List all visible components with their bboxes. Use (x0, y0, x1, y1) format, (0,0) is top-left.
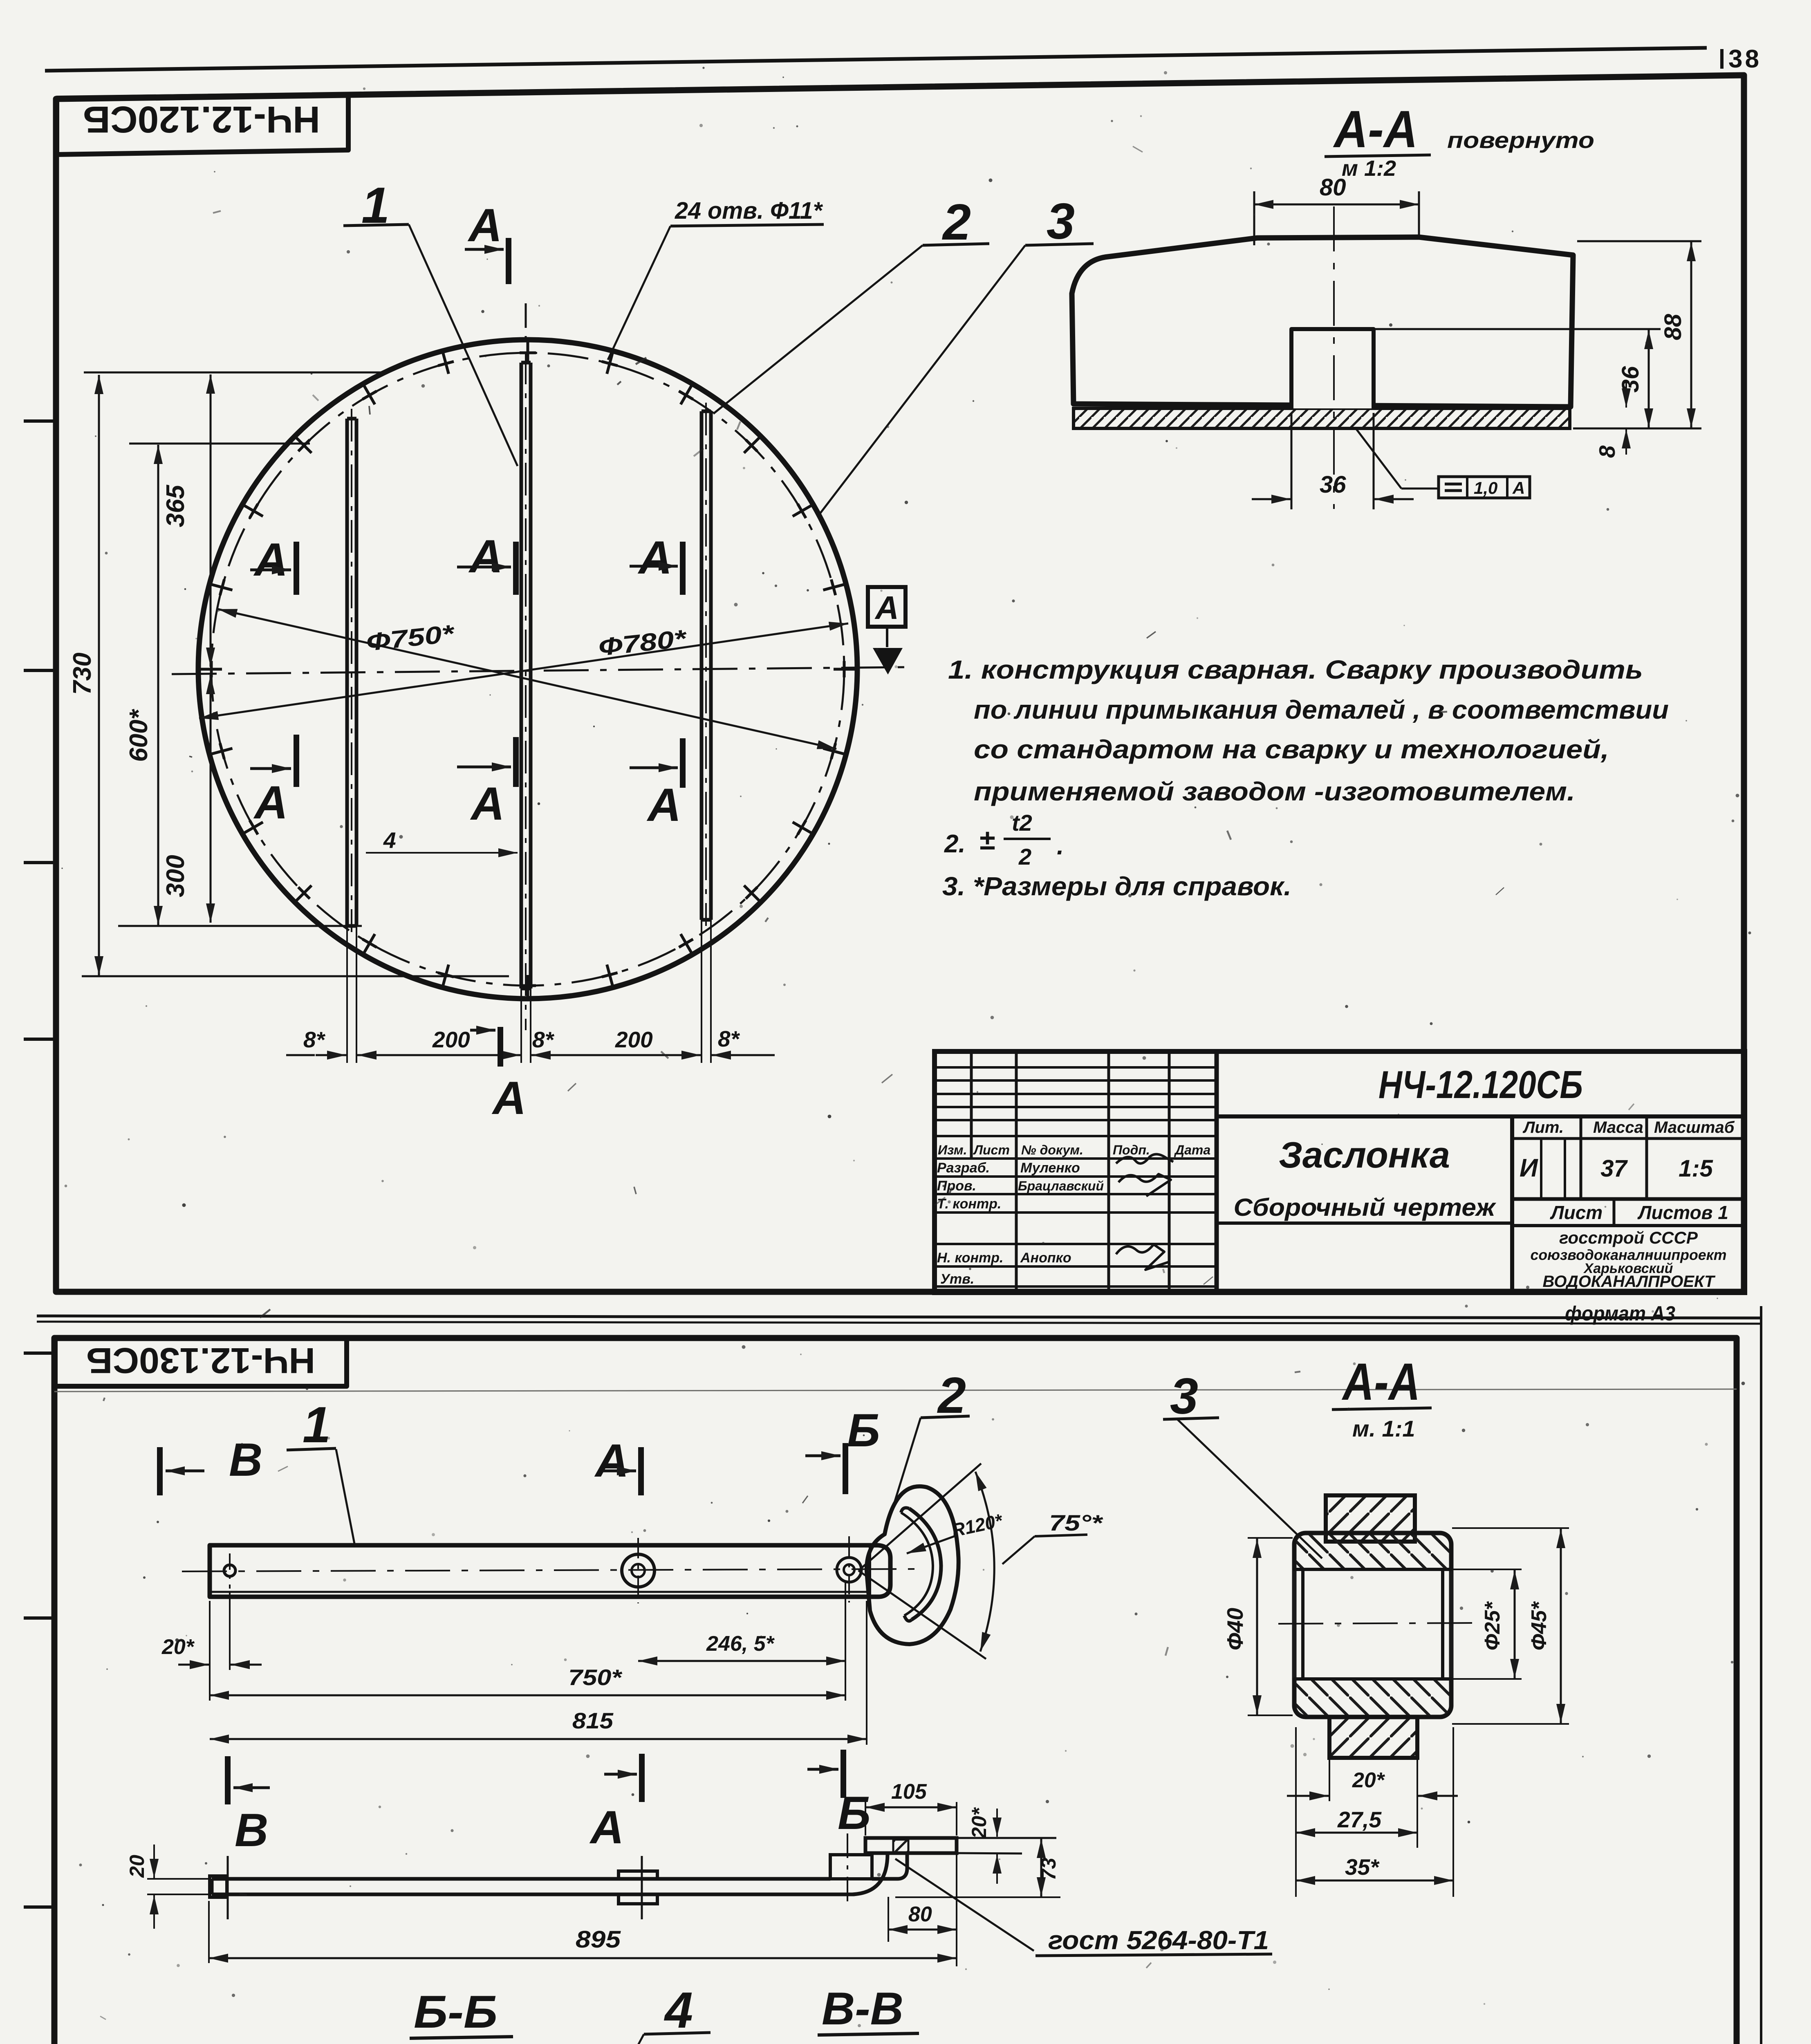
svg-text:м 1:2: м 1:2 (1342, 156, 1396, 181)
svg-text:ВОДОКАНАЛПРОЕКТ: ВОДОКАНАЛПРОЕКТ (1543, 1273, 1716, 1291)
svg-text:1. конструкция сварная. Сварку: 1. конструкция сварная. Сварку производи… (948, 655, 1643, 684)
svg-text:м. 1:1: м. 1:1 (1352, 1416, 1415, 1441)
svg-text:А: А (253, 777, 288, 829)
svg-text:2: 2 (942, 194, 971, 251)
svg-text:730: 730 (68, 652, 96, 695)
svg-text:4: 4 (663, 1982, 693, 2039)
svg-text:20: 20 (126, 1855, 148, 1878)
svg-text:НЧ-12.120СБ: НЧ-12.120СБ (1378, 1063, 1583, 1107)
svg-text:815: 815 (572, 1708, 614, 1733)
svg-text:А: А (470, 778, 504, 830)
svg-text:365: 365 (161, 484, 190, 527)
svg-text:38: 38 (1728, 45, 1762, 73)
svg-text:Ф45*: Ф45* (1527, 1601, 1551, 1650)
svg-text:36: 36 (1617, 366, 1644, 392)
svg-text:Подп.: Подп. (1113, 1143, 1150, 1157)
svg-text:А: А (594, 1435, 629, 1487)
svg-text:НЧ-12.120СБ: НЧ-12.120СБ (83, 99, 320, 140)
svg-text:24 отв. Ф11*: 24 отв. Ф11* (675, 197, 823, 224)
svg-text:4: 4 (383, 827, 396, 853)
svg-text:А-А: А-А (1341, 1353, 1420, 1411)
svg-text:2.: 2. (944, 830, 966, 858)
svg-text:гост 5264-80-Т1: гост 5264-80-Т1 (1048, 1925, 1269, 1955)
svg-text:Дата: Дата (1174, 1143, 1210, 1157)
svg-text:88: 88 (1660, 314, 1686, 340)
svg-text:75°*: 75°* (1049, 1510, 1103, 1535)
svg-text:20*: 20* (968, 1807, 991, 1839)
svg-text:8: 8 (1594, 445, 1620, 458)
svg-text:3. *Размеры для справок.: 3. *Размеры для справок. (942, 872, 1291, 901)
svg-text:8*: 8* (303, 1027, 326, 1052)
svg-text:20*: 20* (161, 1635, 195, 1659)
svg-text:со стандартом на сварку и техн: со стандартом на сварку и технологией, (974, 735, 1609, 764)
svg-text:895: 895 (576, 1926, 621, 1953)
svg-text:80: 80 (908, 1903, 932, 1926)
svg-text:В: В (235, 1804, 268, 1856)
svg-text:Ф25*: Ф25* (1481, 1601, 1504, 1650)
svg-text:Н. контр.: Н. контр. (937, 1250, 1003, 1266)
svg-text:Заслонка: Заслонка (1279, 1135, 1450, 1176)
svg-text:Лист: Лист (1550, 1202, 1603, 1223)
svg-text:Лист: Лист (973, 1143, 1010, 1157)
svg-text:36: 36 (1320, 471, 1346, 498)
svg-text:Б: Б (847, 1405, 880, 1457)
svg-text:300: 300 (161, 855, 190, 897)
svg-text:37: 37 (1600, 1155, 1628, 1182)
svg-text:8*: 8* (532, 1027, 555, 1052)
svg-text:Утв.: Утв. (940, 1271, 974, 1287)
svg-text:А: А (874, 589, 899, 626)
svg-text:Ф40: Ф40 (1222, 1608, 1248, 1651)
svg-text:73: 73 (1037, 1858, 1060, 1880)
svg-text:Листов 1: Листов 1 (1637, 1202, 1728, 1223)
svg-text:1,0: 1,0 (1474, 478, 1497, 498)
svg-text:формат А3: формат А3 (1565, 1302, 1675, 1325)
svg-text:А: А (467, 199, 502, 251)
svg-text:20*: 20* (1352, 1768, 1385, 1792)
svg-text:3: 3 (1170, 1368, 1198, 1425)
svg-text:А: А (637, 532, 672, 584)
svg-text:Разраб.: Разраб. (937, 1160, 990, 1176)
svg-text:госстрой СССР: госстрой СССР (1559, 1228, 1698, 1247)
svg-text:№ докум.: № докум. (1021, 1143, 1083, 1157)
svg-text:Масса: Масса (1593, 1118, 1643, 1136)
svg-text:Муленко: Муленко (1020, 1160, 1080, 1176)
svg-text:А: А (589, 1802, 624, 1853)
svg-text:1: 1 (303, 1397, 331, 1453)
svg-text:А: А (646, 779, 681, 831)
svg-text:246, 5*: 246, 5* (706, 1632, 775, 1656)
svg-text:105: 105 (891, 1780, 927, 1804)
svg-text:А: А (468, 531, 503, 583)
svg-text:А-А: А-А (1333, 100, 1418, 159)
svg-text:1:5: 1:5 (1679, 1155, 1713, 1182)
svg-text:А: А (253, 534, 288, 586)
svg-text:27,5: 27,5 (1337, 1807, 1382, 1832)
svg-text:80: 80 (1320, 174, 1346, 201)
svg-text:35*: 35* (1345, 1854, 1380, 1880)
svg-text:750*: 750* (568, 1665, 623, 1690)
svg-text:по линии примыкания деталей ,: по линии примыкания деталей , в соответс… (974, 695, 1669, 724)
svg-text:Сборочный чертеж: Сборочный чертеж (1234, 1194, 1497, 1221)
svg-text:Брацлавский: Брацлавский (1018, 1179, 1104, 1193)
svg-text:Анопко: Анопко (1020, 1250, 1071, 1266)
svg-text:200: 200 (615, 1027, 653, 1052)
svg-text:В: В (229, 1434, 262, 1486)
svg-text:Т. контр.: Т. контр. (937, 1196, 1001, 1212)
svg-text:600*: 600* (125, 708, 153, 762)
svg-text:А: А (1512, 478, 1525, 498)
svg-text:Лит.: Лит. (1522, 1118, 1564, 1136)
svg-text:В-В: В-В (822, 1983, 903, 2034)
svg-text:3: 3 (1047, 193, 1075, 250)
svg-text:применяемой заводом -изготовит: применяемой заводом -изготовителем. (974, 777, 1575, 806)
svg-text:повернуто: повернуто (1447, 127, 1594, 153)
svg-text:±: ± (979, 824, 995, 856)
svg-text:Б-Б: Б-Б (414, 1986, 498, 2037)
svg-text:А: А (491, 1072, 526, 1124)
svg-text:Изм.: Изм. (938, 1143, 967, 1157)
svg-text:.: . (1057, 832, 1064, 860)
svg-text:200: 200 (432, 1027, 470, 1052)
svg-text:Масштаб: Масштаб (1654, 1118, 1735, 1136)
svg-text:2: 2 (1018, 844, 1031, 870)
svg-text:t2: t2 (1012, 810, 1032, 836)
svg-text:НЧ-12.130СБ: НЧ-12.130СБ (86, 1340, 315, 1381)
svg-text:8*: 8* (718, 1026, 740, 1051)
